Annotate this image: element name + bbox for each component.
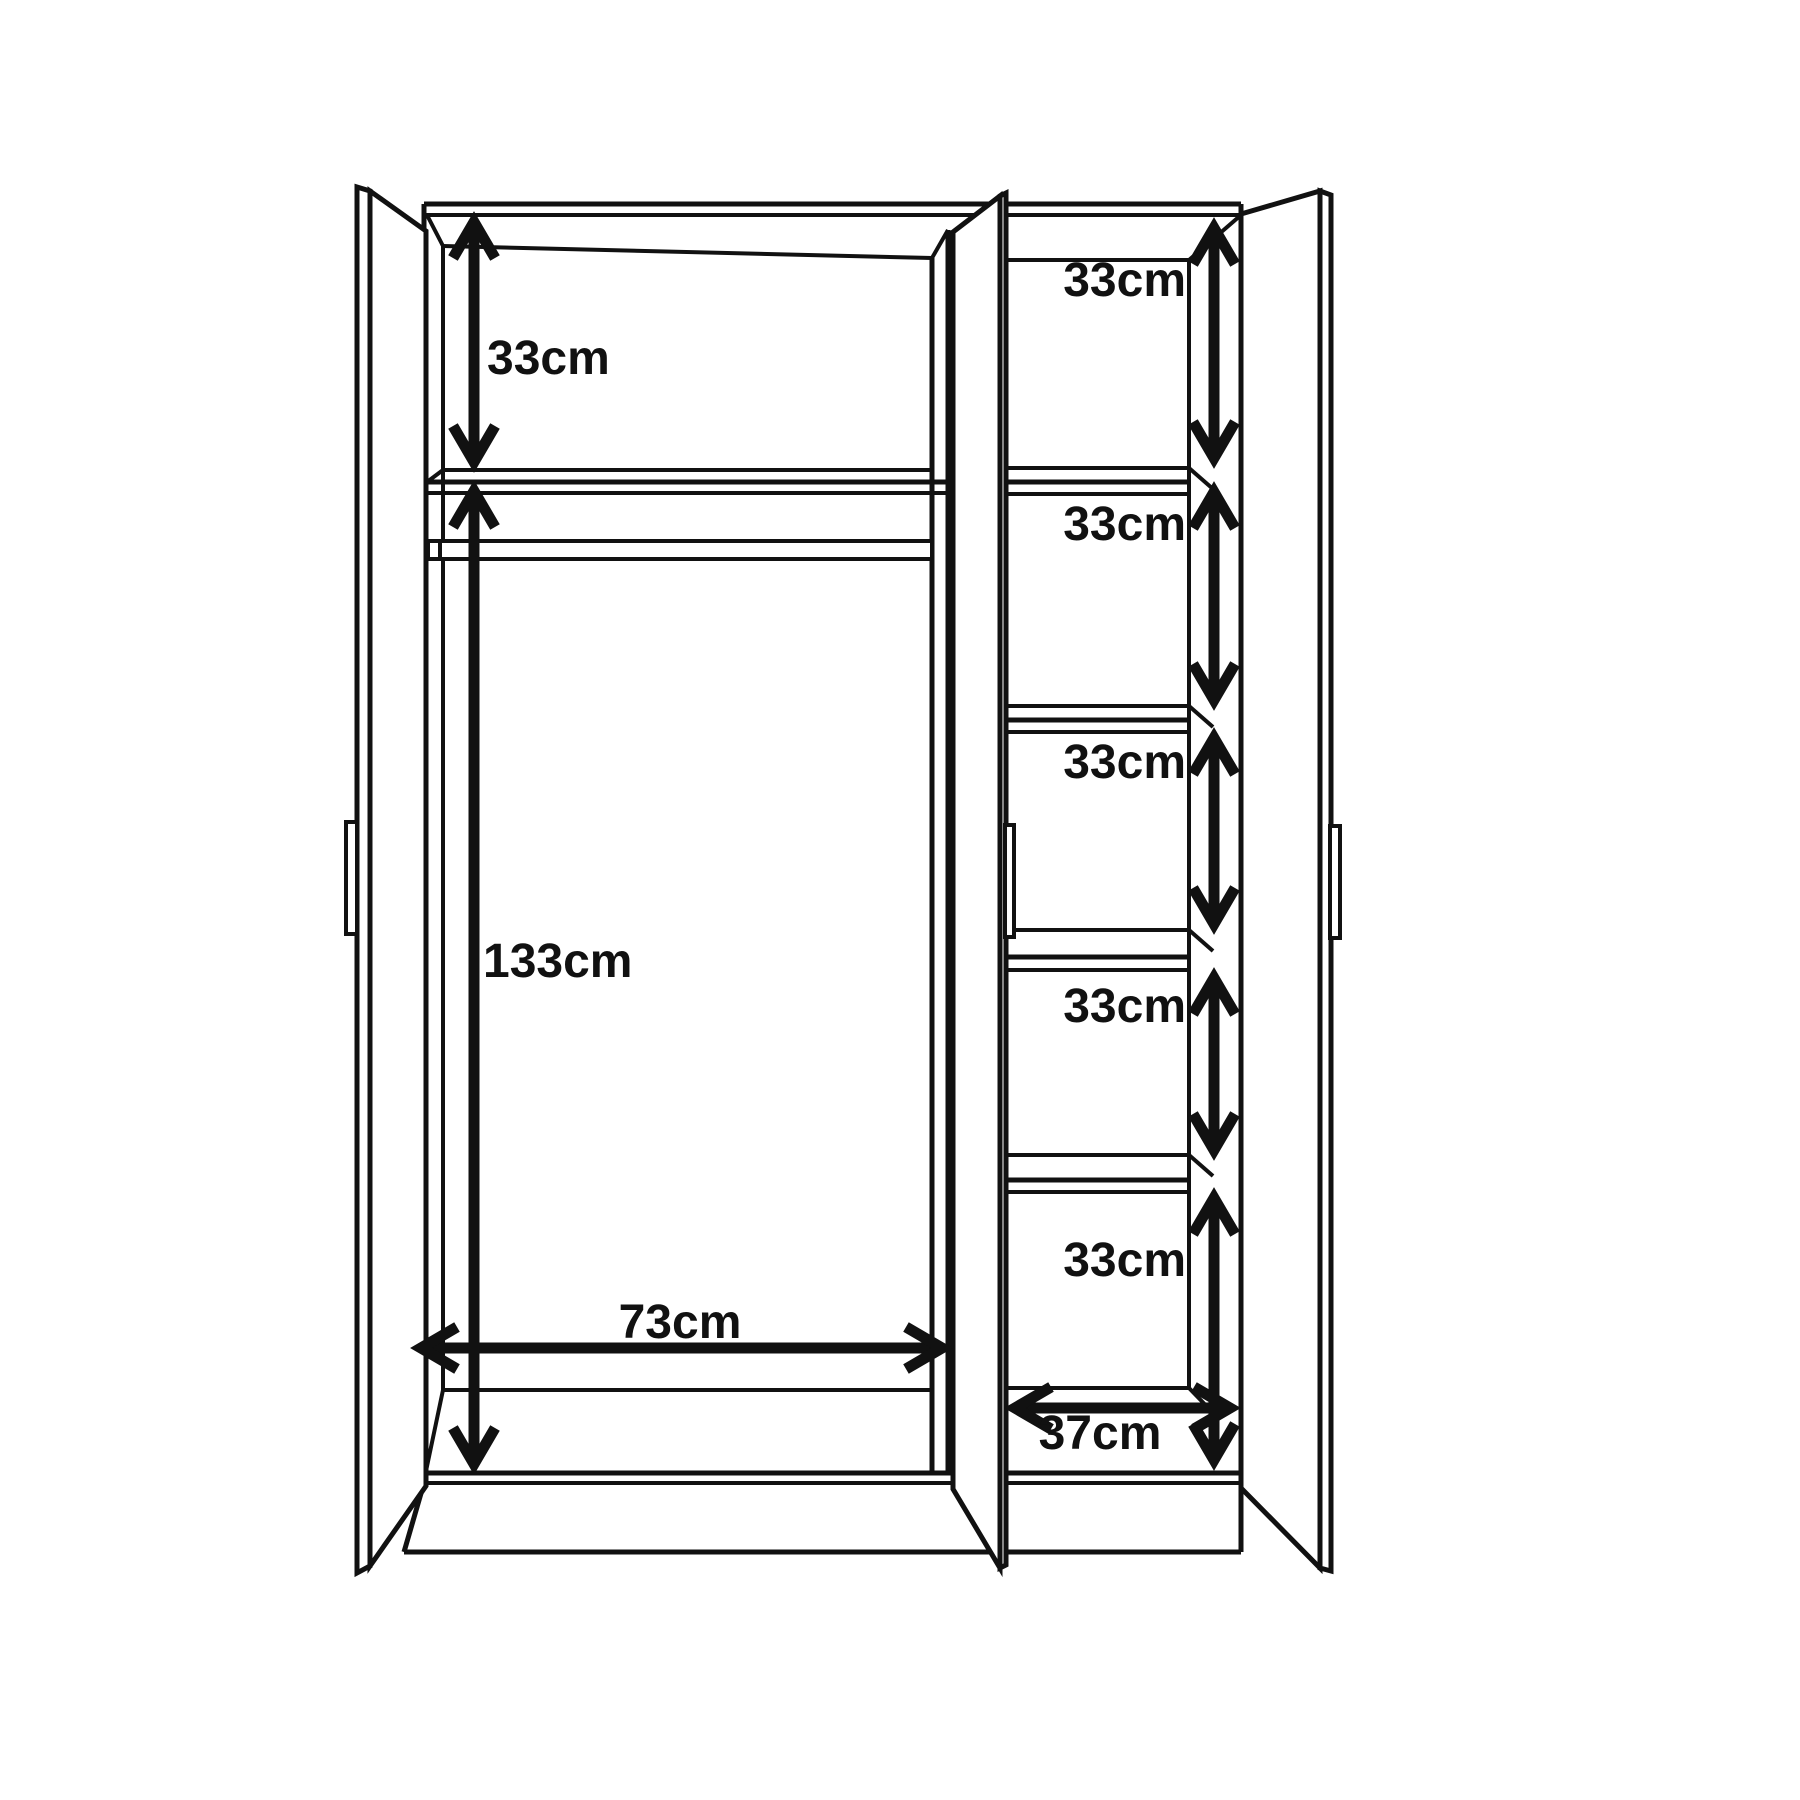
- middle-door: [953, 193, 1014, 1568]
- right-shelf-1: [1007, 468, 1213, 494]
- right-shelf-3: [1007, 930, 1213, 970]
- left-compartment: [427, 470, 948, 559]
- hanging-rail: [428, 541, 932, 559]
- wardrobe-dimension-diagram: 33cm 133cm 73cm 37cm 33cm 33cm 33cm 33cm…: [0, 0, 1800, 1800]
- dim-label-right-gap-2: 33cm: [1063, 498, 1186, 551]
- right-compartment-shelves: [1007, 468, 1213, 1192]
- dim-arrow-right-gap-4: [1193, 978, 1235, 1150]
- left-door-face: [370, 191, 426, 1566]
- dim-label-left-width: 73cm: [619, 1296, 742, 1349]
- diagram-canvas: 33cm 133cm 73cm 37cm 33cm 33cm 33cm 33cm…: [0, 0, 1800, 1800]
- floor-corner-slant-left: [426, 1390, 443, 1471]
- left-door: [346, 187, 426, 1573]
- dim-label-right-gap-4: 33cm: [1063, 980, 1186, 1033]
- dim-arrow-right-gap-1: [1193, 228, 1235, 458]
- dim-arrow-right-gap-3: [1193, 738, 1235, 924]
- dim-label-right-width: 37cm: [1039, 1407, 1162, 1460]
- dim-label-right-gap-5: 33cm: [1063, 1234, 1186, 1287]
- right-door-handle: [1330, 826, 1340, 938]
- dim-label-left-hanging-space: 133cm: [483, 935, 632, 988]
- interior-top-left-compartment: [443, 246, 932, 258]
- interior-top-left-corner: [427, 215, 443, 246]
- dim-label-left-top-shelf: 33cm: [487, 332, 610, 385]
- right-door: [1241, 191, 1340, 1571]
- dim-arrow-right-gap-2: [1193, 492, 1235, 700]
- dim-label-right-gap-1: 33cm: [1063, 254, 1186, 307]
- right-shelf-4: [1007, 1155, 1213, 1192]
- left-door-handle: [346, 822, 357, 934]
- right-shelf-2: [1007, 706, 1213, 732]
- middle-door-face: [953, 196, 1000, 1568]
- right-door-face: [1241, 191, 1320, 1568]
- middle-door-handle: [1005, 825, 1014, 937]
- dim-label-right-gap-3: 33cm: [1063, 736, 1186, 789]
